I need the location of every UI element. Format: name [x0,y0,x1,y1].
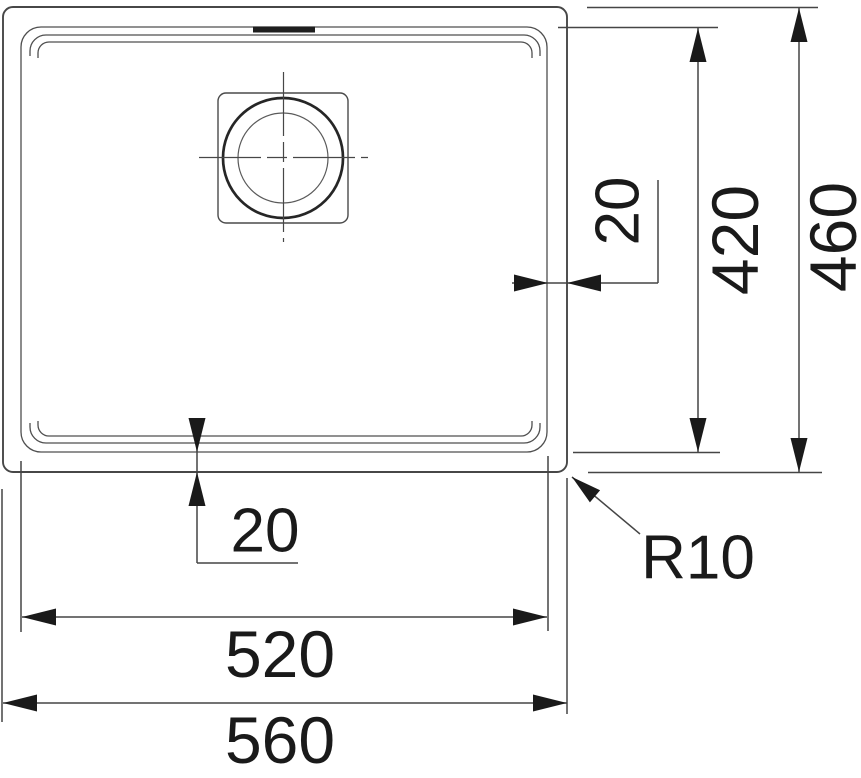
dim-label-overall-depth: 460 [796,182,861,292]
callout-corner-radius: R10 [572,477,755,593]
arrowhead-left-icon [22,609,56,626]
sink-dimension-drawing: 20 420 460 20 [0,0,861,778]
dimension-rim-offset-right: 20 [512,177,658,292]
sink-rim-outline [3,7,567,472]
arrowhead-right-icon [513,609,547,626]
dimension-basin-width: 520 [21,456,548,691]
dim-label-corner-radius: R10 [641,524,755,593]
drawing-svg: 20 420 460 20 [0,0,861,778]
dim-label-overall-width: 560 [225,703,335,777]
arrowhead-upleft-icon [572,477,600,502]
bowl-radius-line-bottom-2 [38,421,532,436]
dim-label-rim-offset-bottom: 20 [231,497,300,566]
bowl-radius-line-top-1 [30,35,540,56]
arrowhead-right-icon [533,695,567,712]
dim-label-basin-depth: 420 [698,185,772,295]
arrowhead-left-icon [3,695,37,712]
arrowhead-up-icon [791,8,808,42]
arrowhead-down-icon [791,438,808,472]
arrowhead-up-icon [189,472,206,506]
sink-outline [3,7,567,472]
dim-label-basin-width: 520 [225,617,335,691]
arrowhead-up-icon [690,28,707,62]
arrowhead-down-icon [690,418,707,452]
overflow-slot [253,27,315,33]
dimension-rim-offset-bottom: 20 [189,418,300,566]
arrowhead-left-icon [567,275,601,292]
arrowhead-down-icon [189,418,206,452]
bowl-radius-line-bottom-1 [30,423,540,443]
drain-assembly [199,72,368,242]
bowl-radius-line-top-2 [38,42,532,58]
arrowhead-right-icon [514,275,548,292]
dim-label-rim-offset-right: 20 [584,177,653,246]
